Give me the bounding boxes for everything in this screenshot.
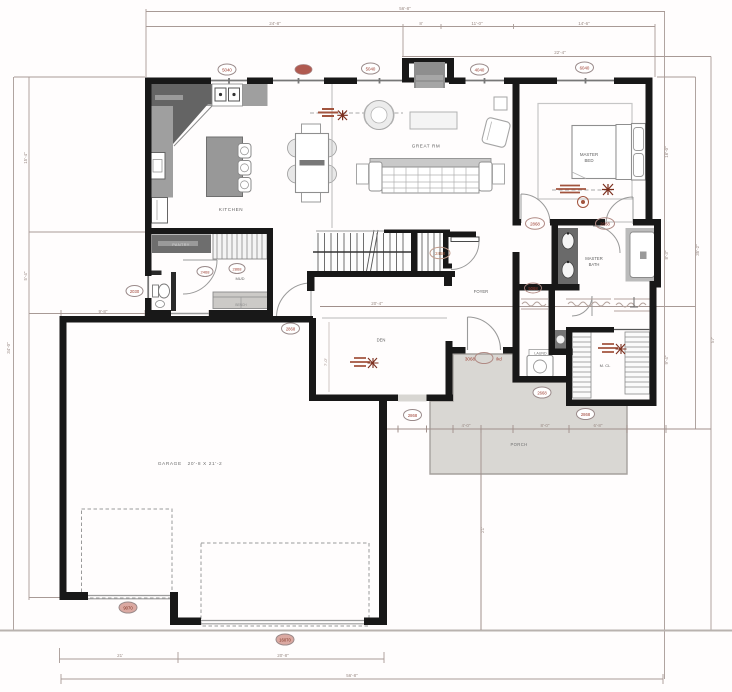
- svg-text:GREAT RM: GREAT RM: [412, 144, 441, 149]
- svg-text:MASTER: MASTER: [580, 152, 598, 157]
- svg-text:9'-4": 9'-4": [664, 355, 669, 364]
- svg-text:2668: 2668: [537, 391, 547, 396]
- svg-text:4040: 4040: [475, 68, 485, 73]
- svg-text:2468: 2468: [435, 251, 445, 256]
- svg-text:5040: 5040: [366, 67, 376, 72]
- svg-text:22'-4": 22'-4": [554, 50, 566, 55]
- svg-text:14'-6": 14'-6": [578, 21, 590, 26]
- svg-text:MASTER: MASTER: [585, 256, 602, 261]
- svg-text:2868: 2868: [286, 327, 296, 332]
- svg-text:DEN: DEN: [377, 338, 386, 343]
- svg-text:7'-0": 7'-0": [323, 357, 328, 366]
- svg-text:3068: 3068: [465, 357, 476, 362]
- svg-text:2468: 2468: [201, 270, 211, 275]
- svg-text:5'-4": 5'-4": [23, 271, 28, 280]
- svg-text:21': 21': [117, 653, 123, 658]
- svg-text:LAUND.: LAUND.: [534, 352, 547, 356]
- svg-text:9070: 9070: [123, 606, 133, 611]
- svg-text:4'-0": 4'-0": [462, 423, 471, 428]
- svg-text:2668: 2668: [600, 222, 610, 227]
- svg-text:5040: 5040: [222, 68, 232, 73]
- svg-text:M. CL: M. CL: [600, 363, 611, 368]
- svg-text:16070: 16070: [279, 638, 291, 643]
- svg-text:2868: 2868: [530, 222, 540, 227]
- svg-text:2868: 2868: [581, 412, 591, 417]
- svg-text:35'-2": 35'-2": [695, 244, 700, 256]
- svg-text:6040: 6040: [580, 66, 590, 71]
- svg-text:16'-0": 16'-0": [664, 146, 669, 158]
- svg-text:GARAGE 20'-8 X 21'-2: GARAGE 20'-8 X 21'-2: [158, 461, 223, 467]
- svg-text:KITCHEN: KITCHEN: [219, 207, 243, 212]
- svg-text:2868: 2868: [408, 413, 418, 418]
- svg-text:34'-0": 34'-0": [6, 342, 11, 354]
- svg-text:PANTRY: PANTRY: [172, 243, 190, 247]
- svg-text:FOYER: FOYER: [474, 289, 488, 294]
- svg-text:5068: 5068: [528, 286, 538, 291]
- svg-text:11'-0": 11'-0": [471, 21, 483, 26]
- svg-text:ikd: ikd: [496, 357, 502, 362]
- svg-text:8'-3": 8'-3": [664, 250, 669, 259]
- svg-text:56'-8": 56'-8": [399, 6, 411, 11]
- svg-text:57': 57': [710, 337, 715, 343]
- svg-text:MUD: MUD: [235, 276, 244, 281]
- svg-text:2868: 2868: [233, 267, 243, 272]
- svg-text:PORCH: PORCH: [510, 442, 527, 447]
- svg-text:2030: 2030: [130, 289, 140, 294]
- svg-text:20'-8": 20'-8": [277, 653, 289, 658]
- svg-text:20'-4": 20'-4": [371, 301, 383, 306]
- svg-text:BED: BED: [584, 158, 593, 163]
- svg-text:24'-8": 24'-8": [269, 21, 281, 26]
- svg-text:BENCH: BENCH: [235, 303, 247, 307]
- svg-text:BATH: BATH: [589, 262, 600, 267]
- svg-text:56'-8": 56'-8": [346, 673, 358, 678]
- svg-text:15'-4": 15'-4": [23, 152, 28, 164]
- svg-text:8'-0": 8'-0": [541, 423, 550, 428]
- svg-text:8': 8': [419, 21, 423, 26]
- svg-text:9'-8": 9'-8": [99, 309, 108, 314]
- svg-text:6'-8": 6'-8": [594, 423, 603, 428]
